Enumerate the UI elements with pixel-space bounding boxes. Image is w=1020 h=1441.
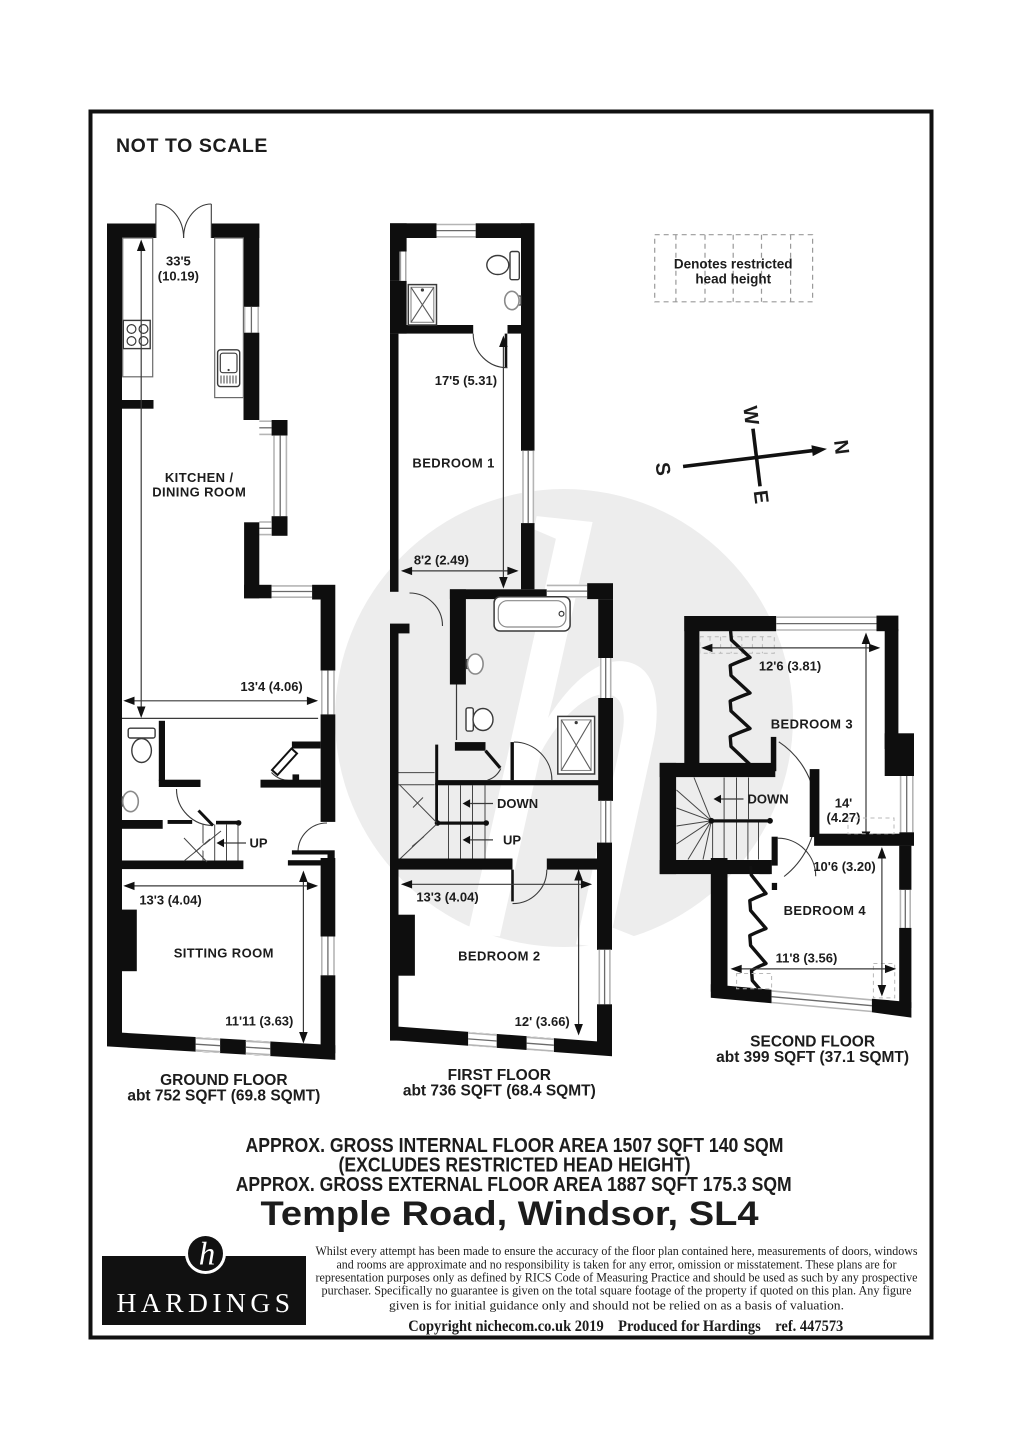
svg-text:BEDROOM 4: BEDROOM 4: [784, 903, 867, 918]
svg-text:12'6 (3.81): 12'6 (3.81): [759, 659, 821, 674]
svg-text:N: N: [829, 439, 853, 456]
svg-text:13'3 (4.04): 13'3 (4.04): [139, 893, 201, 908]
svg-text:11'8 (3.56): 11'8 (3.56): [776, 950, 838, 965]
svg-text:11'11 (3.63): 11'11 (3.63): [225, 1014, 293, 1029]
svg-text:KITCHEN /: KITCHEN /: [165, 470, 234, 485]
svg-text:17'5 (5.31): 17'5 (5.31): [435, 373, 497, 388]
svg-text:BEDROOM 2: BEDROOM 2: [458, 949, 540, 964]
svg-text:W: W: [738, 405, 762, 427]
svg-text:SECOND FLOOR: SECOND FLOOR: [750, 1034, 875, 1051]
svg-text:(10.19): (10.19): [158, 269, 199, 284]
svg-text:UP: UP: [503, 833, 521, 848]
svg-text:DOWN: DOWN: [748, 792, 789, 807]
svg-text:head height: head height: [695, 272, 771, 287]
svg-text:abt 752 SQFT (69.8 SQMT): abt 752 SQFT (69.8 SQMT): [127, 1088, 320, 1105]
svg-text:Copyright nichecom.co.uk 2019: Copyright nichecom.co.uk 2019 Produced f…: [408, 1318, 843, 1335]
svg-text:8'2 (2.49): 8'2 (2.49): [414, 552, 469, 567]
svg-text:13'4 (4.06): 13'4 (4.06): [240, 679, 302, 694]
svg-text:DINING ROOM: DINING ROOM: [152, 485, 246, 500]
svg-text:S: S: [650, 461, 673, 477]
svg-text:Temple Road, Windsor, SL4: Temple Road, Windsor, SL4: [261, 1195, 759, 1233]
svg-text:E: E: [749, 489, 772, 505]
svg-text:Denotes restricted: Denotes restricted: [674, 257, 793, 272]
svg-text:APPROX. GROSS EXTERNAL FLOOR A: APPROX. GROSS EXTERNAL FLOOR AREA 1887 S…: [236, 1174, 792, 1196]
svg-text:SITTING ROOM: SITTING ROOM: [174, 945, 274, 960]
svg-text:UP: UP: [250, 836, 268, 851]
svg-text:abt 736 SQFT (68.4 SQMT): abt 736 SQFT (68.4 SQMT): [403, 1083, 596, 1100]
svg-text:given is for initial guidance: given is for initial guidance only and s…: [389, 1299, 844, 1313]
svg-text:10'6 (3.20): 10'6 (3.20): [813, 859, 875, 874]
svg-text:HARDINGS: HARDINGS: [117, 1287, 293, 1318]
svg-text:33'5: 33'5: [166, 254, 191, 269]
svg-text:13'3 (4.04): 13'3 (4.04): [416, 890, 478, 905]
svg-text:abt 399 SQFT (37.1 SQMT): abt 399 SQFT (37.1 SQMT): [716, 1049, 909, 1066]
svg-text:h: h: [199, 1237, 216, 1273]
svg-text:(4.27): (4.27): [827, 810, 861, 825]
svg-text:NOT TO SCALE: NOT TO SCALE: [116, 135, 268, 157]
svg-text:representation purposes only a: representation purposes only as defined …: [316, 1271, 918, 1285]
svg-text:14': 14': [835, 796, 853, 811]
svg-text:BEDROOM 1: BEDROOM 1: [412, 456, 494, 471]
svg-text:DOWN: DOWN: [497, 796, 538, 811]
svg-text:Whilst every attempt has been: Whilst every attempt has been made to en…: [316, 1244, 918, 1258]
svg-text:12' (3.66): 12' (3.66): [515, 1014, 570, 1029]
svg-text:and rooms are approximate and: and rooms are approximate and no respons…: [337, 1257, 897, 1271]
svg-text:GROUND FLOOR: GROUND FLOOR: [160, 1072, 287, 1089]
svg-text:purchaser. Specifically no gu: purchaser. Specifically no guarantee is …: [322, 1284, 912, 1298]
svg-text:BEDROOM 3: BEDROOM 3: [771, 717, 853, 732]
svg-text:FIRST FLOOR: FIRST FLOOR: [448, 1067, 551, 1084]
